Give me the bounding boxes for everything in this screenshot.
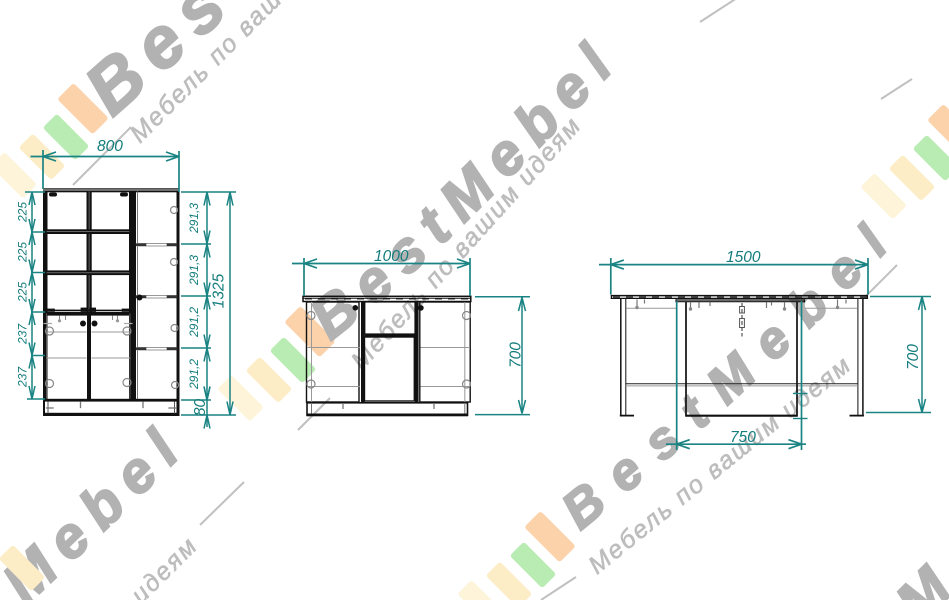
svg-text:291,3: 291,3 [187,255,201,286]
svg-text:291,2: 291,2 [187,359,201,390]
svg-text:80: 80 [192,399,209,417]
svg-text:800: 800 [97,138,123,155]
svg-text:700: 700 [905,344,922,370]
svg-text:700: 700 [508,342,525,368]
svg-text:237: 237 [16,323,30,345]
svg-text:225: 225 [16,282,30,303]
svg-text:237: 237 [16,366,30,388]
svg-text:1500: 1500 [726,249,761,266]
svg-text:1325: 1325 [211,273,228,308]
svg-text:291,3: 291,3 [187,203,201,234]
svg-text:291,2: 291,2 [187,307,201,338]
svg-text:1000: 1000 [374,248,409,265]
svg-text:225: 225 [16,202,30,223]
svg-text:750: 750 [730,429,756,446]
svg-text:225: 225 [16,242,30,263]
